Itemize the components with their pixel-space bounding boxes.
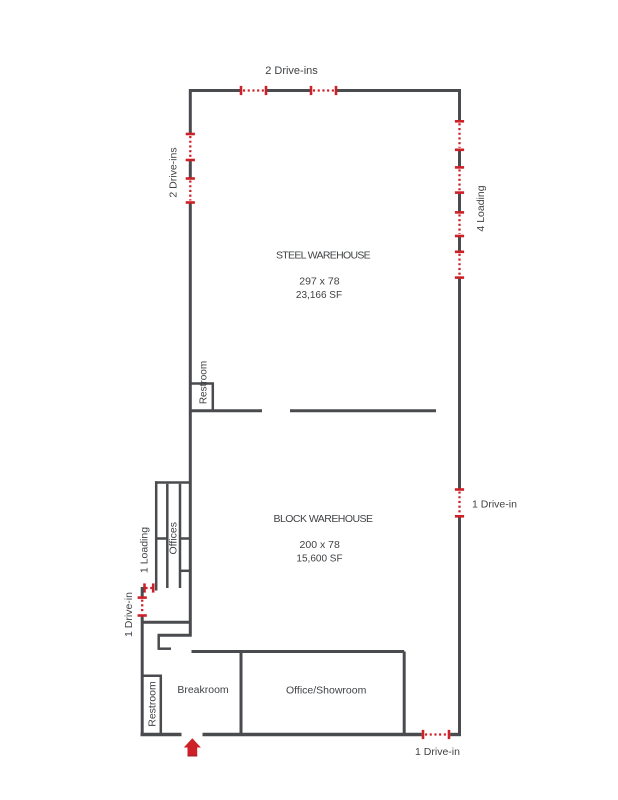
svg-text:1 Drive-in: 1 Drive-in — [415, 746, 460, 758]
svg-text:Restroom: Restroom — [146, 681, 158, 727]
svg-text:4 Loading: 4 Loading — [475, 185, 487, 231]
svg-text:Breakroom: Breakroom — [177, 684, 229, 696]
svg-text:1 Drive-in: 1 Drive-in — [472, 498, 517, 510]
svg-text:2 Drive-ins: 2 Drive-ins — [168, 147, 180, 197]
svg-text:297 x 78: 297 x 78 — [299, 276, 339, 288]
svg-text:Offices: Offices — [168, 522, 180, 554]
svg-text:Restroom: Restroom — [199, 361, 210, 404]
svg-text:15,600 SF: 15,600 SF — [296, 553, 342, 564]
svg-text:BLOCK WAREHOUSE: BLOCK WAREHOUSE — [273, 513, 373, 525]
svg-text:200 x 78: 200 x 78 — [300, 539, 340, 551]
svg-text:1 Drive-in: 1 Drive-in — [123, 592, 135, 637]
svg-text:2 Drive-ins: 2 Drive-ins — [265, 65, 318, 77]
svg-text:23,166 SF: 23,166 SF — [296, 290, 342, 301]
svg-text:STEEL WAREHOUSE: STEEL WAREHOUSE — [276, 250, 371, 262]
svg-text:1 Loading: 1 Loading — [139, 527, 151, 573]
svg-text:Office/Showroom: Office/Showroom — [286, 685, 367, 697]
